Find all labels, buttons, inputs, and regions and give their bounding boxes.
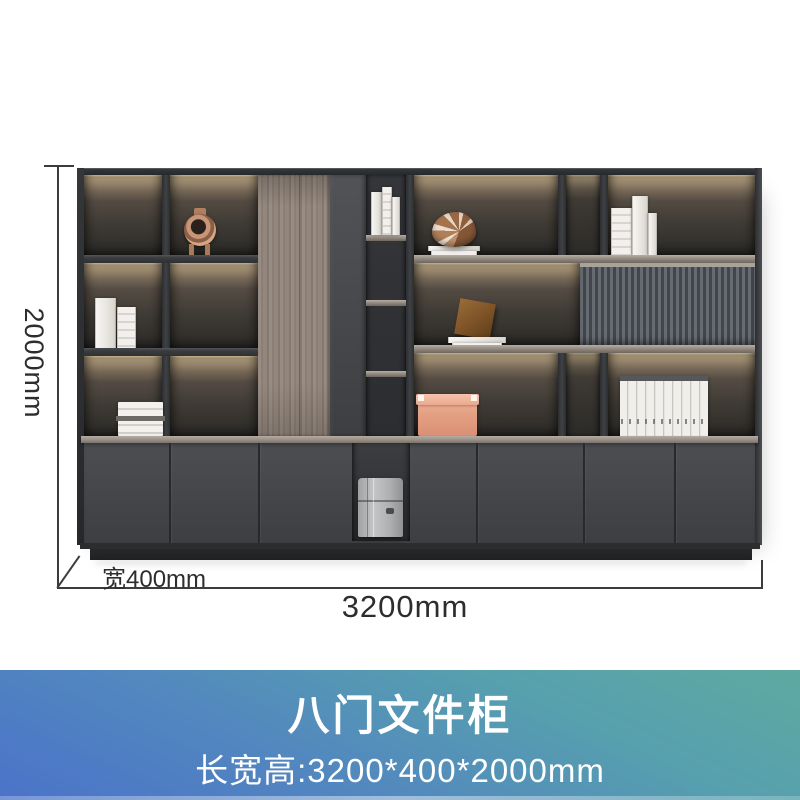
banner-subtitle: 长宽高:3200*400*2000mm — [0, 744, 800, 792]
cubby-column — [366, 175, 406, 436]
cubby-shelf — [366, 300, 406, 306]
cubby-book — [371, 192, 382, 235]
ornament-ring — [184, 214, 216, 246]
width-dim-tick-right — [761, 560, 763, 589]
ornament-leg — [189, 244, 194, 255]
cubby-shelf — [366, 371, 406, 377]
book — [117, 307, 136, 348]
cabinet-top-edge — [77, 168, 762, 175]
rose-gold-ornament — [183, 208, 217, 255]
depth-diagonal-line — [56, 555, 80, 588]
gray-briefcase — [358, 478, 403, 537]
fluted-sliding-panel — [580, 263, 755, 345]
height-dim-line — [57, 165, 59, 588]
info-banner: 八门文件柜 长宽高:3200*400*2000mm — [0, 670, 800, 800]
banner-title: 八门文件柜 — [0, 682, 800, 743]
ornament-leg — [205, 244, 210, 255]
box-corner — [418, 395, 424, 401]
nautilus-shell-ornament — [432, 212, 476, 247]
narrow-slot — [566, 175, 600, 255]
briefcase-flap-seam — [358, 500, 403, 502]
product-image: 2000mm 宽400mm 3200mm 八门文件柜 长宽高:3200*400*… — [0, 0, 800, 800]
box-corner — [471, 395, 477, 401]
briefcase-seam — [367, 478, 368, 537]
briefcase-seam — [373, 478, 374, 537]
shelf-board — [414, 255, 755, 263]
height-dim-label: 2000mm — [19, 297, 49, 429]
shelf-compartment — [170, 263, 258, 348]
cubby-book — [392, 197, 400, 235]
counter-top — [81, 436, 758, 443]
box-lid — [416, 394, 479, 405]
open-lower-cubby — [352, 443, 410, 541]
shelf-board — [84, 348, 258, 356]
cubby-book — [382, 187, 392, 235]
cabinet-right-edge — [755, 168, 762, 545]
door-seam — [169, 443, 171, 545]
shelf-compartment — [84, 175, 162, 255]
shelf-board — [414, 345, 755, 353]
shelf-compartment — [170, 356, 258, 436]
shelf-compartment — [414, 263, 580, 345]
shelf-compartment — [414, 175, 558, 255]
briefcase-handle-hole — [386, 508, 394, 514]
book — [95, 298, 116, 348]
banner-bottom-glow — [0, 796, 800, 800]
door-seam — [674, 443, 676, 545]
book — [648, 213, 657, 255]
vertical-divider — [558, 353, 566, 436]
salmon-storage-box — [418, 394, 477, 436]
door-seam — [476, 443, 478, 545]
bronze-cube-ornament — [454, 298, 496, 340]
vertical-divider — [558, 175, 566, 255]
binder-ring-band — [620, 419, 708, 424]
cabinet — [77, 168, 762, 545]
vertical-divider — [162, 175, 170, 436]
white-binder-row — [620, 376, 708, 436]
vertical-divider — [600, 353, 608, 436]
wood-door-seam — [299, 175, 300, 436]
wood-grain-door — [258, 175, 330, 436]
magazine-dark — [116, 416, 165, 421]
cabinet-left-edge — [77, 168, 84, 545]
vertical-divider — [406, 175, 414, 436]
cubby-shelf — [366, 235, 406, 241]
door-seam — [258, 443, 260, 545]
door-seam — [583, 443, 585, 545]
middle-door — [330, 175, 366, 436]
vertical-divider — [600, 175, 608, 255]
width-dim-label: 3200mm — [0, 589, 800, 625]
height-dim-tick-top — [44, 165, 74, 167]
lower-cabinet-doors — [84, 443, 755, 545]
book — [611, 208, 632, 255]
book — [632, 196, 648, 255]
shelf-board — [84, 255, 258, 263]
narrow-slot — [566, 353, 600, 436]
